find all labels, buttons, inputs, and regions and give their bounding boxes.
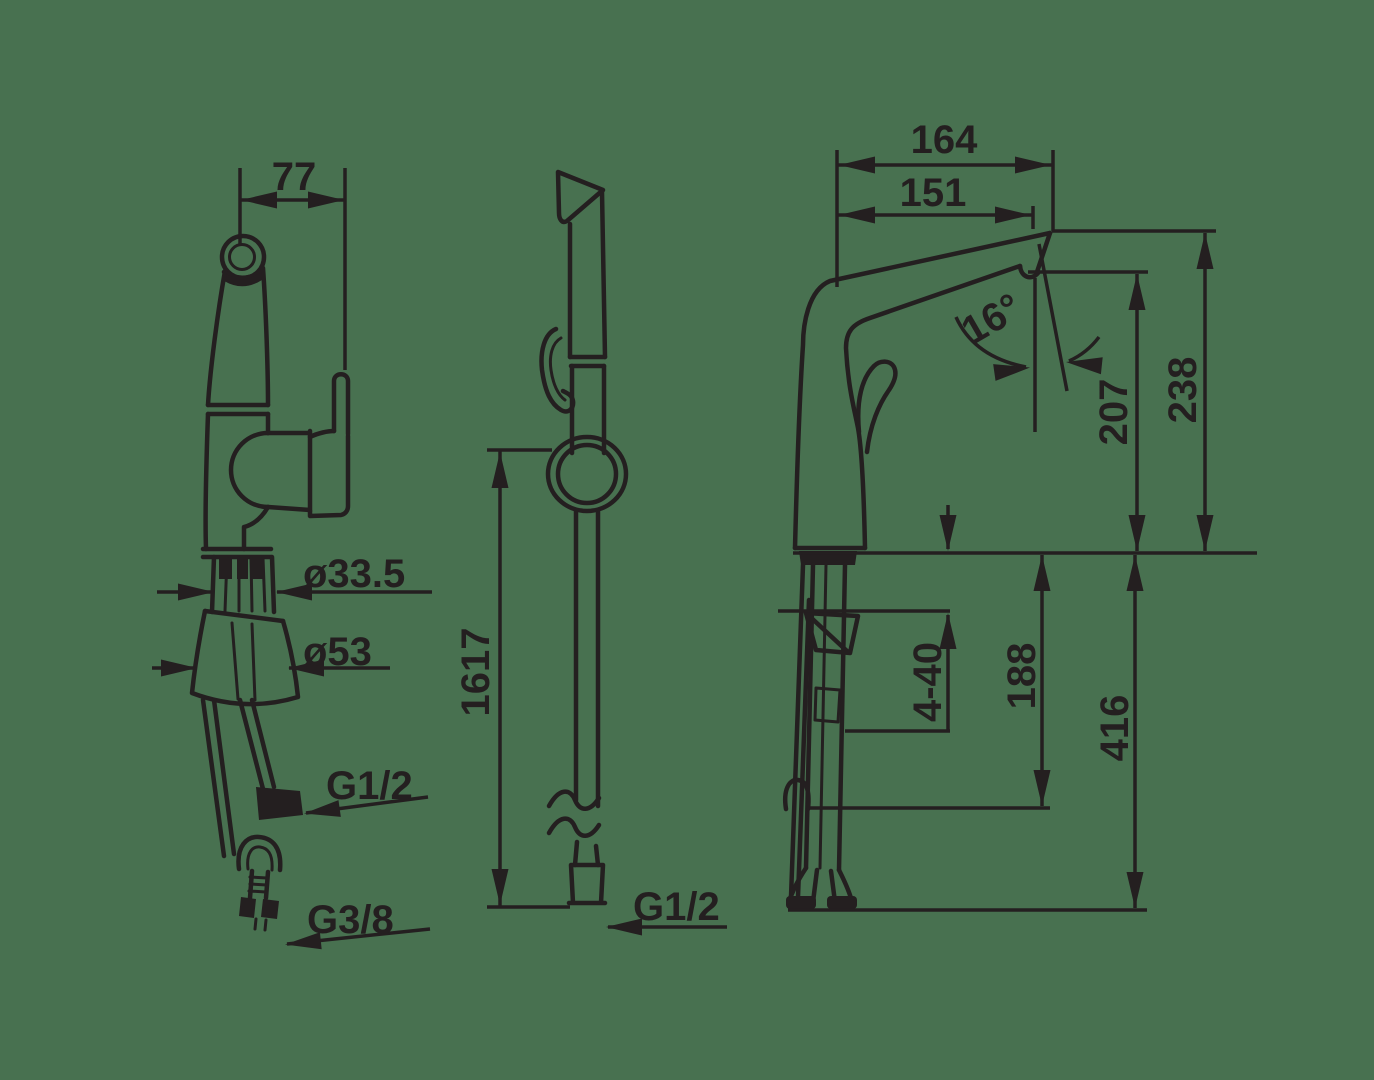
body-left-edge	[206, 414, 208, 549]
spray-head	[558, 172, 603, 222]
supply-nut	[239, 897, 279, 919]
escutcheon-cone	[192, 611, 298, 704]
hose-coupling	[256, 787, 303, 820]
stub-end	[255, 919, 266, 930]
hose-end-fitting	[569, 865, 605, 903]
threaded-rod	[203, 700, 234, 856]
spray-body-joint	[570, 357, 605, 366]
dim-dia-53: ø53	[152, 630, 390, 677]
dim-4-40: 4-40	[845, 505, 957, 731]
dim-207: 207	[1092, 274, 1146, 551]
hose-thread-label: G1/2	[326, 764, 413, 808]
dim-151: 151	[837, 171, 1033, 229]
spout-joint	[208, 405, 268, 414]
dim-416-label: 416	[1093, 695, 1137, 762]
hose-thread-label: G1/2	[633, 885, 720, 929]
dim-angle-label: 16°	[954, 285, 1028, 353]
gasket	[237, 558, 248, 579]
dim-4-40-label: 4-40	[906, 642, 950, 722]
gasket	[252, 558, 264, 579]
escutcheon-hoses	[232, 623, 255, 700]
dim-dia-shank-label: ø33.5	[303, 552, 405, 596]
dim-77-label: 77	[272, 155, 317, 199]
hose-upper	[576, 510, 598, 806]
escutcheon-top	[205, 611, 283, 621]
callout-g38: G3/8	[284, 898, 430, 953]
hose-ring-inner	[558, 445, 616, 503]
dim-77: 77	[240, 155, 345, 370]
faucet-technical-drawing: 77 ø33.5 ø53 G1/2 G3/8	[0, 0, 1374, 1080]
handle-loop	[858, 362, 895, 452]
spout-cone-left	[208, 271, 225, 405]
middle-view: 1617 G1/2	[454, 172, 727, 936]
dim-416: 416	[1093, 555, 1144, 908]
foot-pad	[786, 896, 816, 909]
dim-238: 238	[1161, 233, 1214, 551]
handle-lever	[334, 374, 348, 434]
dim-164-label: 164	[911, 118, 978, 162]
gasket	[219, 558, 232, 579]
cartridge-housing-bulge	[231, 433, 268, 507]
dim-151-label: 151	[900, 171, 967, 215]
clamp-outer	[239, 837, 281, 870]
hose-length-label: 1617	[454, 628, 498, 717]
mount-wedge	[806, 613, 858, 653]
callout-g12-left: G1/2	[303, 764, 428, 822]
left-view: 77 ø33.5 ø53 G1/2 G3/8	[152, 155, 432, 953]
dim-188: 188	[1000, 555, 1051, 806]
dim-238-label: 238	[1161, 357, 1205, 424]
hose-lower	[575, 842, 598, 865]
hose-break-1	[549, 792, 599, 809]
cartridge-housing	[268, 431, 310, 511]
dim-1617: 1617	[454, 450, 570, 907]
callout-g12-middle: G1/2	[606, 885, 727, 936]
foot-pad	[827, 896, 857, 909]
handle-base	[310, 431, 348, 516]
handspray-outline	[542, 172, 626, 903]
right-view: 164 151 16° 207 23	[778, 118, 1257, 910]
dim-dia-33-5: ø33.5	[157, 552, 432, 601]
hose-break-2	[549, 819, 599, 836]
supply-thread-label: G3/8	[307, 898, 394, 942]
body-right-edge-lower	[244, 507, 268, 549]
dim-207-label: 207	[1092, 379, 1136, 446]
spray-hose	[240, 700, 274, 789]
clamp-inner	[248, 847, 272, 870]
mount-block	[815, 688, 840, 722]
spout-top-edge	[795, 233, 1050, 548]
spray-outlet-inner	[230, 245, 255, 270]
spout-cone-right	[263, 268, 268, 405]
dim-188-label: 188	[1000, 643, 1044, 710]
dim-dia-base-label: ø53	[303, 630, 372, 674]
